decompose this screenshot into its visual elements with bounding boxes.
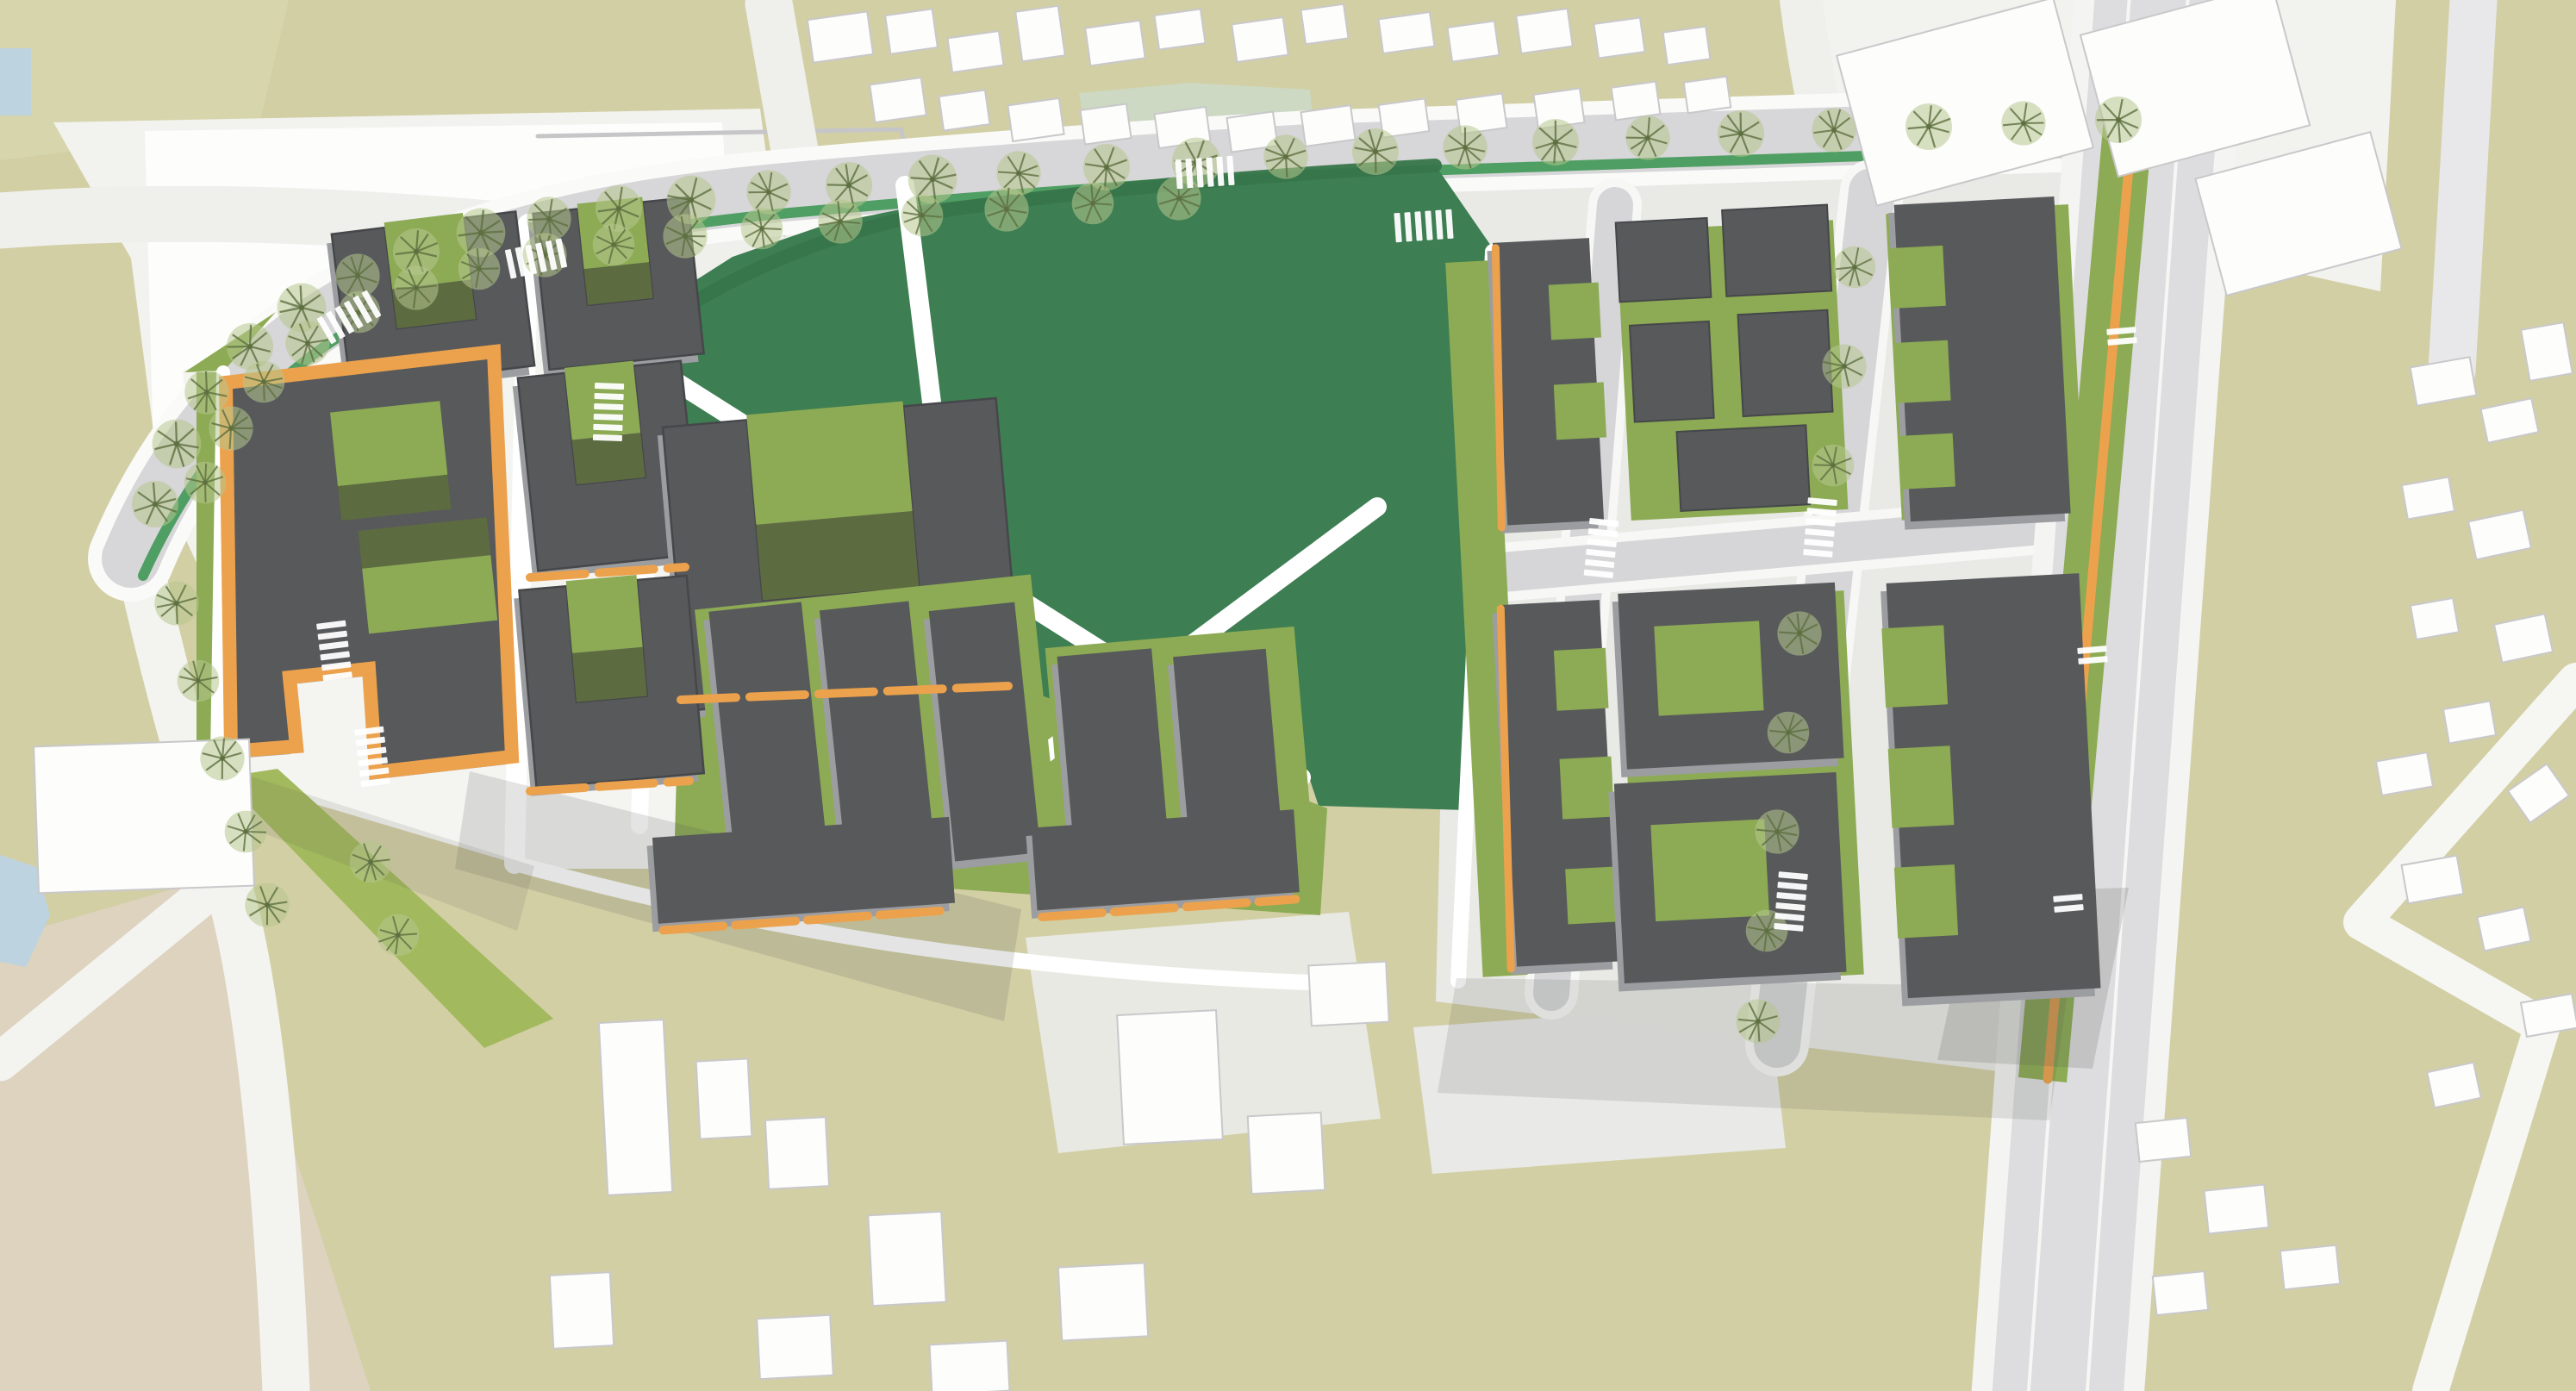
context-building [1300, 105, 1355, 147]
context-building [1594, 17, 1644, 58]
context-building [1663, 27, 1711, 65]
context-building [808, 11, 873, 62]
context-building [1007, 98, 1063, 141]
context-building [1308, 962, 1389, 1026]
context-building [1379, 12, 1435, 53]
context-building [1058, 1263, 1148, 1340]
context-building [870, 78, 926, 122]
context-building [1117, 1010, 1223, 1145]
context-building [930, 1341, 1010, 1391]
masterplan-map [0, 0, 2576, 1391]
context-building [2443, 702, 2496, 744]
water [0, 48, 31, 115]
context-building [757, 1315, 833, 1379]
context-building [885, 9, 938, 53]
context-building [696, 1058, 752, 1138]
context-building [2205, 1184, 2269, 1233]
context-building [948, 31, 1004, 72]
context-building [1085, 21, 1145, 65]
context-building [1612, 82, 1661, 121]
context-building [1300, 4, 1348, 45]
road [2452, 0, 2473, 371]
context-building [1015, 6, 1065, 61]
context-building [1248, 1113, 1325, 1194]
context-building [2153, 1271, 2208, 1315]
crosswalk-stripe [593, 424, 622, 431]
context-building [1232, 17, 1288, 62]
building-block-b6 [513, 571, 705, 796]
context-building [765, 1117, 829, 1189]
context-building [2521, 322, 2573, 381]
crosswalk-stripe [594, 403, 623, 410]
context-building [1447, 21, 1499, 61]
crosswalk-stripe [595, 393, 624, 400]
context-building [2136, 1118, 2191, 1162]
crosswalk-stripe [594, 414, 623, 421]
context-building [2402, 477, 2454, 520]
context-building [868, 1212, 945, 1306]
crosswalk-stripe [595, 383, 624, 390]
context-building [1154, 9, 1205, 49]
context-building [1516, 9, 1573, 53]
context-building [1684, 77, 1731, 114]
building-slab-long [1026, 809, 1300, 919]
context-building [2411, 598, 2459, 639]
crosswalk-stripe [593, 434, 622, 441]
context-building [939, 90, 989, 130]
building-block-orange [220, 352, 512, 780]
context-building [2280, 1245, 2340, 1290]
tree-icon [132, 481, 178, 527]
building-column-c [1860, 196, 2110, 1006]
building-column-b [1578, 204, 1873, 991]
context-building [550, 1272, 614, 1349]
context-building [599, 1020, 672, 1195]
context-building [1080, 103, 1131, 144]
